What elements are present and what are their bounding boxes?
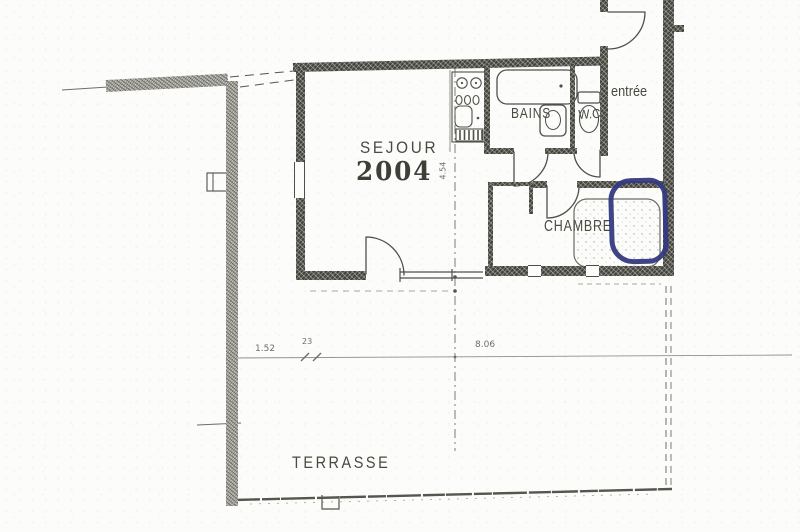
wc-label: W.C (578, 106, 601, 122)
entree-label: entrée (611, 83, 647, 100)
dim-sejour-depth: 4.54 (439, 150, 448, 180)
wall-duct-box (207, 173, 228, 191)
wall-wc-entree-lower (600, 46, 608, 156)
chambre-label: CHAMBRE (544, 218, 612, 236)
sejour-west-window (294, 162, 305, 198)
dim-terrace-small: 23 (302, 337, 312, 346)
bains-label: BAINS (511, 105, 551, 122)
terrace-bottom-edge (234, 489, 672, 500)
wall-wc-entree-upper (600, 0, 608, 12)
entry-front-door (608, 12, 645, 49)
sejour-door (366, 237, 404, 275)
terrace-edges (234, 286, 672, 509)
sejour-number: 2004 (356, 157, 432, 187)
wall-sejour-bottom (296, 271, 366, 280)
sejour-label: SEJOUR (360, 138, 438, 158)
left-thin-line (62, 87, 108, 90)
wall-sejour-left-lower (296, 197, 305, 280)
wall-bains-bottom-right (545, 148, 577, 154)
floor-plan-scan: SEJOUR 2004 BAINS W.C entrée CHAMBRE TER… (0, 0, 800, 532)
bathtub-icon (497, 70, 577, 104)
wall-closet-top (488, 182, 533, 186)
dim-terrace-span: 8.06 (475, 340, 495, 350)
dim-terrace-left: 1.52 (255, 344, 275, 354)
chambre-south-window-1 (528, 265, 541, 277)
wall-closet-left (488, 184, 493, 270)
pen-annotation-ellipse (608, 177, 669, 265)
wc-door (574, 150, 600, 177)
fixtures (207, 70, 660, 267)
boundary-dash-connector (230, 71, 294, 87)
wall-sejour-left-upper (296, 68, 305, 163)
wall-chambre-top-left-stub (533, 181, 547, 188)
chambre-south-window-2 (586, 265, 599, 277)
bathtub-drain (559, 84, 562, 87)
terrasse-label: TERRASSE (292, 453, 390, 473)
wall-kitchen-bains-divider (484, 64, 490, 152)
kitchenette-icon (452, 72, 487, 142)
sejour-south-window (400, 268, 483, 282)
wall-closet-stub (529, 184, 533, 214)
windows (400, 268, 483, 282)
wall-right-stub (663, 25, 684, 32)
dimension-lines (62, 68, 792, 451)
wall-bains-wc-divider (570, 64, 575, 148)
boundary-wall-left (226, 81, 238, 506)
wall-chambre-bottom (485, 266, 674, 276)
wall-bains-bottom-left (484, 148, 514, 154)
